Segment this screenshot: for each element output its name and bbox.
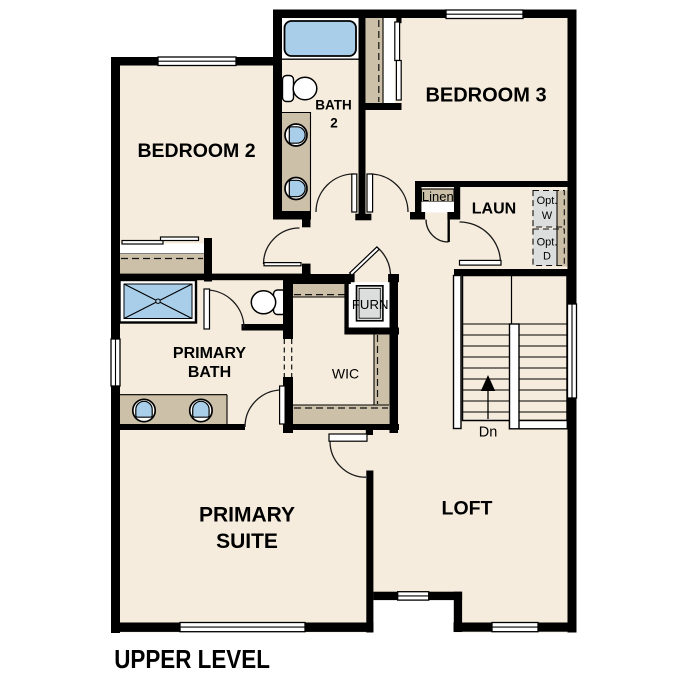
svg-text:PRIMARY: PRIMARY xyxy=(173,345,247,362)
svg-text:BATH: BATH xyxy=(188,364,231,381)
svg-text:LAUN: LAUN xyxy=(472,201,516,218)
svg-text:LOFT: LOFT xyxy=(442,498,493,520)
svg-text:UPPER LEVEL: UPPER LEVEL xyxy=(114,646,270,675)
svg-text:FURN: FURN xyxy=(352,297,389,312)
svg-text:WIC: WIC xyxy=(332,366,359,382)
svg-text:BEDROOM 3: BEDROOM 3 xyxy=(425,85,546,107)
svg-text:W: W xyxy=(542,210,553,222)
svg-text:Opt.: Opt. xyxy=(537,237,558,249)
svg-text:PRIMARY: PRIMARY xyxy=(199,504,295,527)
svg-text:Linen: Linen xyxy=(422,189,454,204)
svg-text:SUITE: SUITE xyxy=(216,530,278,553)
svg-text:Opt.: Opt. xyxy=(537,195,558,207)
svg-text:BEDROOM 2: BEDROOM 2 xyxy=(137,140,255,162)
svg-text:2: 2 xyxy=(330,116,338,131)
svg-text:Dn: Dn xyxy=(479,424,498,440)
svg-text:D: D xyxy=(543,251,551,263)
svg-text:BATH: BATH xyxy=(315,98,352,113)
